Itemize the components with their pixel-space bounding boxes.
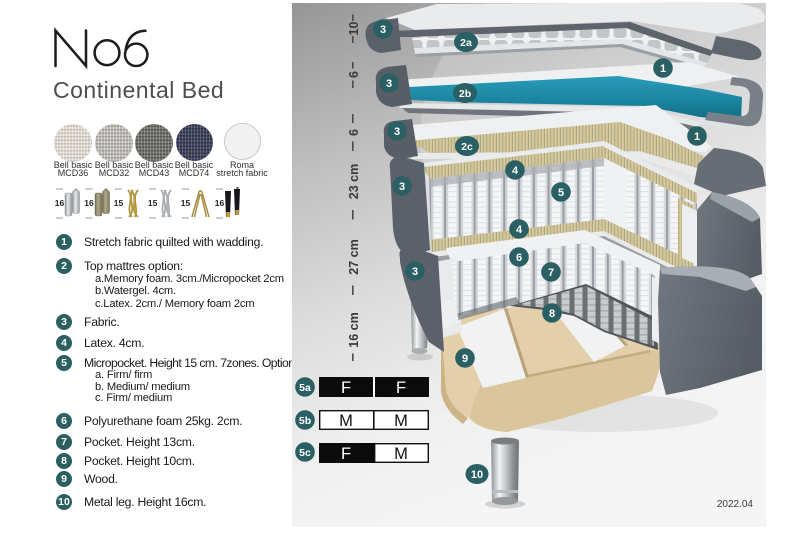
svg-text:6: 6 xyxy=(347,71,361,78)
svg-text:F: F xyxy=(341,379,351,397)
svg-text:6: 6 xyxy=(516,252,522,264)
svg-text:M: M xyxy=(394,445,408,463)
svg-text:16 cm: 16 cm xyxy=(347,312,361,347)
svg-text:3: 3 xyxy=(380,24,386,36)
svg-text:3: 3 xyxy=(399,181,405,193)
svg-text:5c: 5c xyxy=(299,447,311,459)
svg-text:9: 9 xyxy=(462,353,468,365)
svg-text:3: 3 xyxy=(412,266,418,278)
svg-text:5: 5 xyxy=(558,187,564,199)
svg-text:10: 10 xyxy=(347,22,361,36)
svg-text:3: 3 xyxy=(386,78,392,90)
svg-text:2a: 2a xyxy=(460,37,472,49)
svg-text:5a: 5a xyxy=(299,382,311,394)
svg-text:10: 10 xyxy=(471,469,483,481)
svg-text:6: 6 xyxy=(347,129,361,136)
svg-text:F: F xyxy=(396,379,406,397)
svg-text:2c: 2c xyxy=(461,141,473,153)
svg-text:27 cm: 27 cm xyxy=(347,239,361,274)
svg-text:5b: 5b xyxy=(299,415,311,427)
svg-text:M: M xyxy=(394,412,408,430)
svg-text:7: 7 xyxy=(548,267,554,279)
svg-text:2022.04: 2022.04 xyxy=(717,499,754,510)
svg-text:8: 8 xyxy=(549,308,555,320)
svg-text:3: 3 xyxy=(394,126,400,138)
svg-text:4: 4 xyxy=(516,224,523,236)
svg-text:23 cm: 23 cm xyxy=(347,164,361,199)
svg-text:1: 1 xyxy=(660,63,666,75)
svg-text:M: M xyxy=(339,412,353,430)
svg-text:1: 1 xyxy=(694,131,700,143)
svg-text:F: F xyxy=(341,445,351,463)
svg-text:2b: 2b xyxy=(459,88,471,100)
svg-text:4: 4 xyxy=(512,165,519,177)
